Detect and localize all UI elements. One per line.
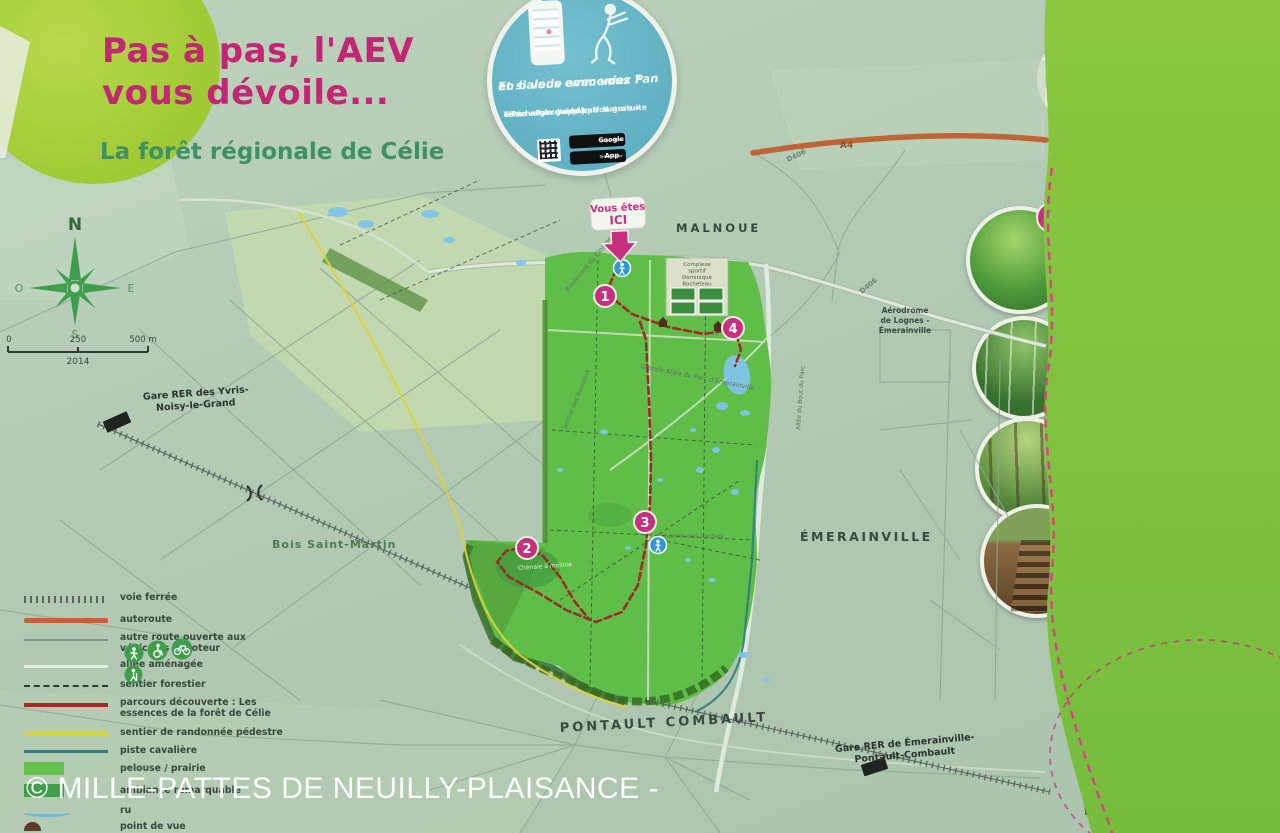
svg-text:sportif: sportif (688, 269, 707, 275)
page-subtitle: La forêt régionale de Célie (100, 139, 444, 165)
svg-text:Dominique: Dominique (682, 275, 712, 281)
wheelchair-icon (147, 640, 168, 665)
svg-text:3: 3 (640, 516, 649, 531)
svg-text:E: E (128, 282, 135, 295)
svg-text:O: O (15, 282, 24, 295)
app-store-badge: Télécharger surApp Store (570, 149, 627, 165)
svg-text:D406: D406 (858, 276, 879, 295)
svg-text:Allée du Bout du Parc: Allée du Bout du Parc (795, 366, 806, 431)
svg-text:500 m: 500 m (129, 335, 156, 345)
svg-text:Chemin des Vaches: Chemin des Vaches (660, 532, 724, 540)
sports-complex: Complexe sportif Dominique Rocheteau (666, 258, 728, 316)
sign-panel: Complexe sportif Dominique Rocheteau MAL… (0, 0, 1280, 833)
legend-hiking-trail: sentier de randonnée pédestre (22, 728, 284, 739)
svg-text:2: 2 (522, 542, 531, 557)
legend-bridle-path: piste cavalière (22, 746, 284, 757)
bicycle-icon (171, 638, 193, 664)
legend-discovery-trail: parcours découverte : Les essences de la… (22, 698, 284, 719)
svg-text:0: 0 (6, 335, 11, 345)
qr-code (537, 138, 561, 162)
scale-bar: 0 250 500 m 2014 (6, 335, 156, 367)
essences-panel-background (1044, 0, 1280, 833)
station-yvris (103, 411, 132, 433)
svg-text:2014: 2014 (67, 357, 90, 367)
svg-text:Bois Saint-Martin: Bois Saint-Martin (272, 538, 397, 551)
title-line-2: vous dévoile... (102, 72, 414, 114)
hiker-icon (124, 665, 143, 688)
legend-stream: ru (22, 806, 284, 817)
sticker-heading: Et si vous emmeniez Pan en balade avec v… (498, 71, 666, 80)
legend-motorway: autoroute (22, 615, 284, 626)
svg-text:Complexe: Complexe (683, 262, 711, 268)
page-title: Pas à pas, l'AEV vous dévoile... (102, 30, 414, 114)
svg-text:Aérodrome: Aérodrome (882, 306, 929, 315)
svg-text:1: 1 (600, 290, 609, 305)
svg-text:MALNOUE: MALNOUE (676, 221, 761, 235)
svg-text:A4: A4 (840, 141, 854, 151)
title-line-1: Pas à pas, l'AEV (102, 30, 414, 72)
smartphone-illustration (528, 0, 565, 66)
walker-icon (124, 643, 144, 667)
legend-railway: voie ferrée (22, 593, 284, 604)
svg-text:N: N (68, 215, 82, 235)
svg-text:ICI: ICI (609, 213, 627, 228)
legend-forest-path: sentier forestier (22, 680, 284, 691)
svg-text:de Lognes -: de Lognes - (881, 316, 930, 325)
svg-text:ÉMERAINVILLE: ÉMERAINVILLE (800, 529, 933, 544)
photographer-watermark: © MILLE-PATTES DE NEUILLY-PLAISANCE - (26, 772, 659, 806)
svg-text:Émerainville: Émerainville (879, 326, 931, 335)
svg-text:Rocheteau: Rocheteau (682, 282, 711, 288)
pan-faun-illustration (580, 0, 637, 67)
google-play-badge: Disponible surGoogle play (569, 133, 626, 149)
svg-text:250: 250 (70, 335, 86, 345)
legend-viewpoint: point de vue (22, 822, 284, 833)
svg-text:4: 4 (728, 322, 737, 337)
sticker-body: Téléchargez l'application gratuite « Pan… (503, 102, 663, 110)
